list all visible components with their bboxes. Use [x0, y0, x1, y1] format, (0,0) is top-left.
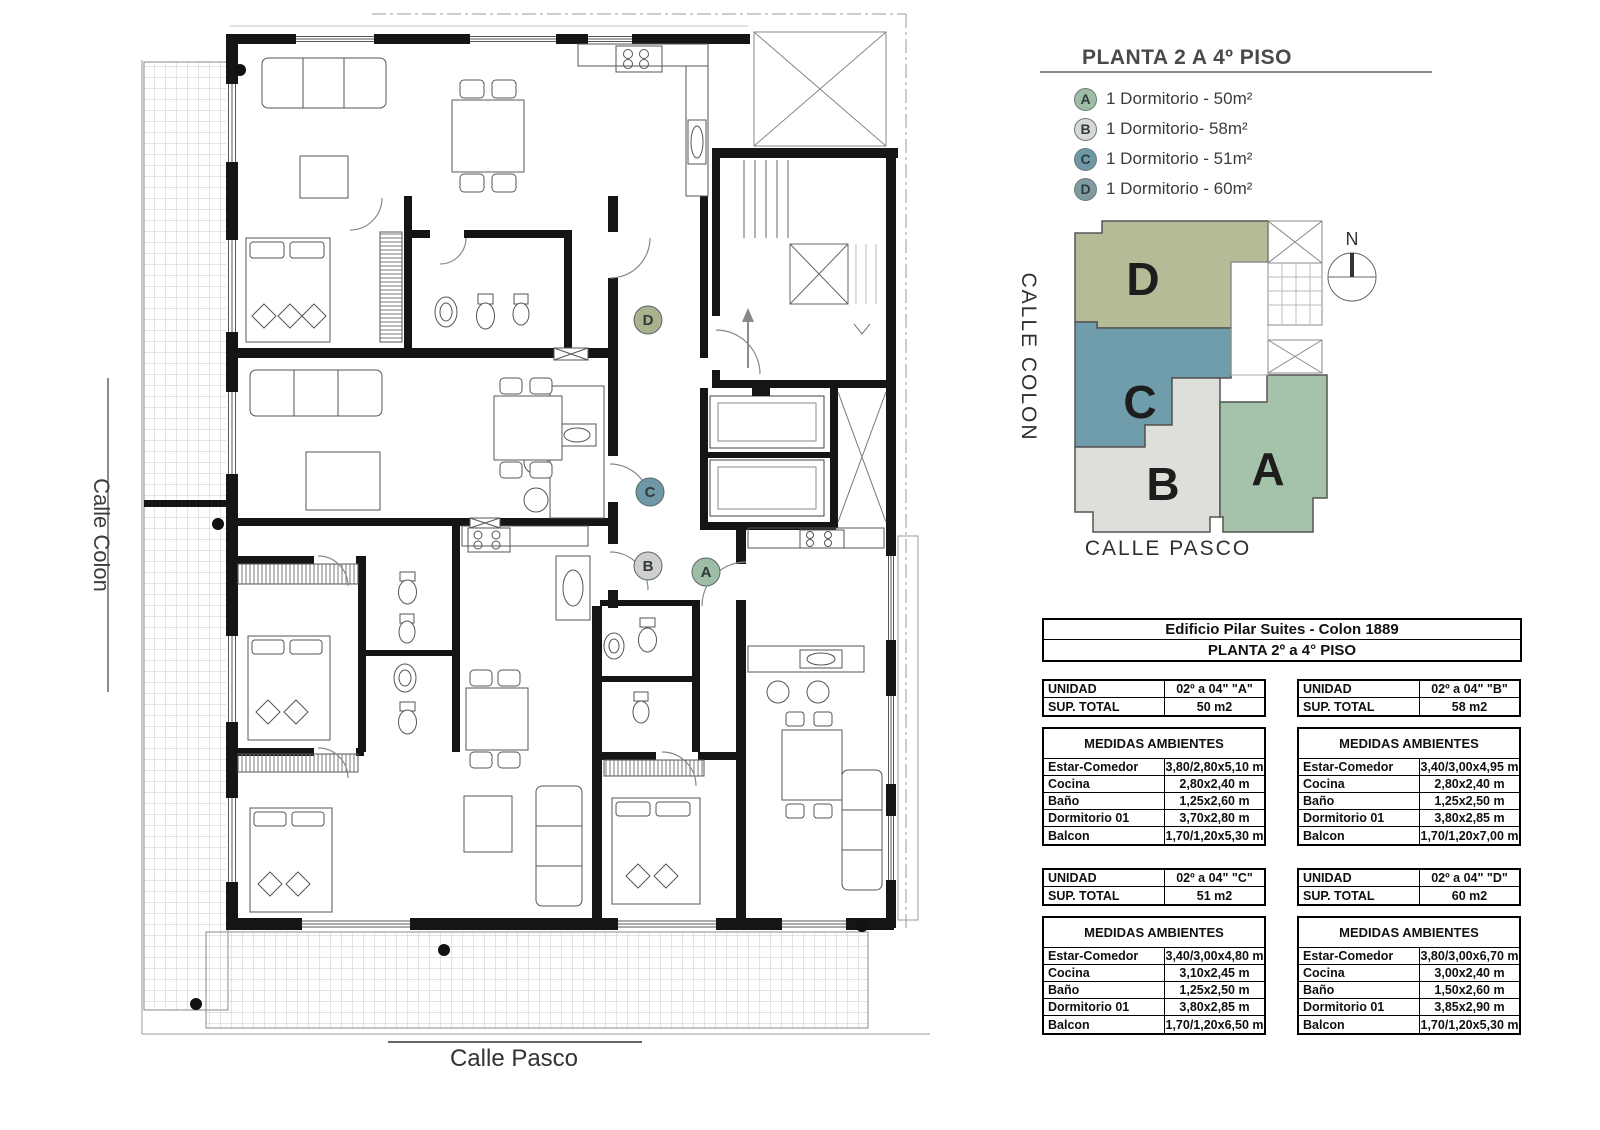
table-row: Baño1,25x2,50 m — [1044, 982, 1264, 999]
table-row: UNIDAD 02º a 04" "D" — [1299, 870, 1519, 887]
legend-label: 1 Dormitorio - 51m² — [1106, 149, 1252, 169]
svg-text:C: C — [1123, 376, 1156, 428]
table-row: Estar-Comedor3,80/2,80x5,10 m — [1044, 759, 1264, 776]
table-row: Balcon1,70/1,20x7,00 m — [1299, 827, 1519, 844]
key-plan-street-left: CALLE COLON — [1017, 272, 1040, 441]
key-plan: D C B A CALLE COLON CALLE PASCO N — [1000, 215, 1400, 565]
unit-b-badge: B — [1074, 118, 1097, 141]
table-row: Baño1,25x2,50 m — [1299, 793, 1519, 810]
unit-c-unidad-table: UNIDAD 02º a 04" "C" SUP. TOTAL 51 m2 — [1042, 868, 1266, 906]
legend-item-b: B 1 Dormitorio- 58m² — [1074, 114, 1252, 144]
elevator-1 — [710, 388, 824, 448]
legend-list: A 1 Dormitorio - 50m² B 1 Dormitorio- 58… — [1074, 84, 1252, 204]
table-row: Cocina3,10x2,45 m — [1044, 965, 1264, 982]
table-row: Balcon1,70/1,20x5,30 m — [1044, 827, 1264, 844]
elevator-2 — [710, 452, 824, 516]
floor-plan-drawing: D C B A Calle Colon Calle Pasco — [0, 0, 960, 1130]
svg-text:A: A — [701, 564, 712, 581]
unit-a-unidad-table: UNIDAD 02º a 04" "A" SUP. TOTAL 50 m2 — [1042, 679, 1266, 717]
unit-b-medidas-table: MEDIDAS AMBIENTES Estar-Comedor3,40/3,00… — [1297, 727, 1521, 846]
key-plan-street-bottom: CALLE PASCO — [1085, 537, 1251, 560]
building-name: Edificio Pilar Suites - Colon 1889 — [1044, 620, 1520, 640]
table-row: SUP. TOTAL 50 m2 — [1044, 698, 1264, 715]
street-label-left: Calle Colon — [89, 478, 114, 592]
unit-b-unidad-table: UNIDAD 02º a 04" "B" SUP. TOTAL 58 m2 — [1297, 679, 1521, 717]
table-row: Balcon1,70/1,20x6,50 m — [1044, 1016, 1264, 1033]
table-row: UNIDAD 02º a 04" "C" — [1044, 870, 1264, 887]
table-row: Dormitorio 013,80x2,85 m — [1044, 999, 1264, 1016]
shaft-top-right — [754, 32, 886, 146]
svg-text:A: A — [1251, 443, 1284, 495]
north-label: N — [1346, 229, 1359, 249]
furniture — [238, 58, 882, 912]
legend-label: 1 Dormitorio - 60m² — [1106, 179, 1252, 199]
table-row: Cocina3,00x2,40 m — [1299, 965, 1519, 982]
legend-label: 1 Dormitorio- 58m² — [1106, 119, 1248, 139]
kitchen-b — [462, 526, 590, 620]
svg-text:D: D — [1126, 253, 1159, 305]
table-row: UNIDAD 02º a 04" "A" — [1044, 681, 1264, 698]
unit-d-badge: D — [1074, 178, 1097, 201]
unit-d-medidas-table: MEDIDAS AMBIENTES Estar-Comedor3,80/3,00… — [1297, 916, 1521, 1035]
street-label-bottom: Calle Pasco — [450, 1045, 578, 1072]
table-row: Estar-Comedor3,80/3,00x6,70 m — [1299, 948, 1519, 965]
legend-item-d: D 1 Dormitorio - 60m² — [1074, 174, 1252, 204]
table-row: SUP. TOTAL 51 m2 — [1044, 887, 1264, 904]
table-row: Balcon1,70/1,20x5,30 m — [1299, 1016, 1519, 1033]
north-compass: N — [1328, 229, 1376, 301]
table-row: Estar-Comedor3,40/3,00x4,95 m — [1299, 759, 1519, 776]
balcony-bottom — [206, 932, 868, 1028]
kitchen-a — [748, 528, 884, 703]
unit-a-badge: A — [1074, 88, 1097, 111]
stairwell — [742, 160, 876, 368]
table-row: SUP. TOTAL 58 m2 — [1299, 698, 1519, 715]
unit-a-medidas-table: MEDIDAS AMBIENTES Estar-Comedor3,80/2,80… — [1042, 727, 1266, 846]
legend-item-c: C 1 Dormitorio - 51m² — [1074, 144, 1252, 174]
legend-underline — [1040, 71, 1432, 73]
unit-c-medidas-table: MEDIDAS AMBIENTES Estar-Comedor3,40/3,00… — [1042, 916, 1266, 1035]
elevator-shaft-x — [838, 392, 886, 522]
table-row: Baño1,50x2,60 m — [1299, 982, 1519, 999]
unit-c-badge: C — [1074, 148, 1097, 171]
table-row: UNIDAD 02º a 04" "B" — [1299, 681, 1519, 698]
building-header-table: Edificio Pilar Suites - Colon 1889 PLANT… — [1042, 618, 1522, 662]
svg-text:B: B — [1146, 458, 1179, 510]
svg-text:D: D — [643, 312, 654, 329]
table-row: Baño1,25x2,60 m — [1044, 793, 1264, 810]
kitchen-d — [578, 44, 708, 196]
svg-text:B: B — [643, 558, 654, 575]
svg-text:C: C — [645, 484, 656, 501]
table-row: SUP. TOTAL 60 m2 — [1299, 887, 1519, 904]
table-row: Estar-Comedor3,40/3,00x4,80 m — [1044, 948, 1264, 965]
building-floor-range: PLANTA 2º a 4° PISO — [1044, 640, 1520, 660]
table-row: Cocina2,80x2,40 m — [1299, 776, 1519, 793]
table-row: Dormitorio 013,85x2,90 m — [1299, 999, 1519, 1016]
table-row: Cocina2,80x2,40 m — [1044, 776, 1264, 793]
unit-d-unidad-table: UNIDAD 02º a 04" "D" SUP. TOTAL 60 m2 — [1297, 868, 1521, 906]
legend-item-a: A 1 Dormitorio - 50m² — [1074, 84, 1252, 114]
balcony-left — [144, 62, 230, 1010]
key-plan-unit-d — [1075, 221, 1268, 328]
table-row: Dormitorio 013,80x2,85 m — [1299, 810, 1519, 827]
legend-label: 1 Dormitorio - 50m² — [1106, 89, 1252, 109]
floorplan-sheet: D C B A Calle Colon Calle Pasco PLANTA 2… — [0, 0, 1600, 1130]
table-row: Dormitorio 013,70x2,80 m — [1044, 810, 1264, 827]
legend-title: PLANTA 2 A 4º PISO — [1082, 46, 1292, 70]
